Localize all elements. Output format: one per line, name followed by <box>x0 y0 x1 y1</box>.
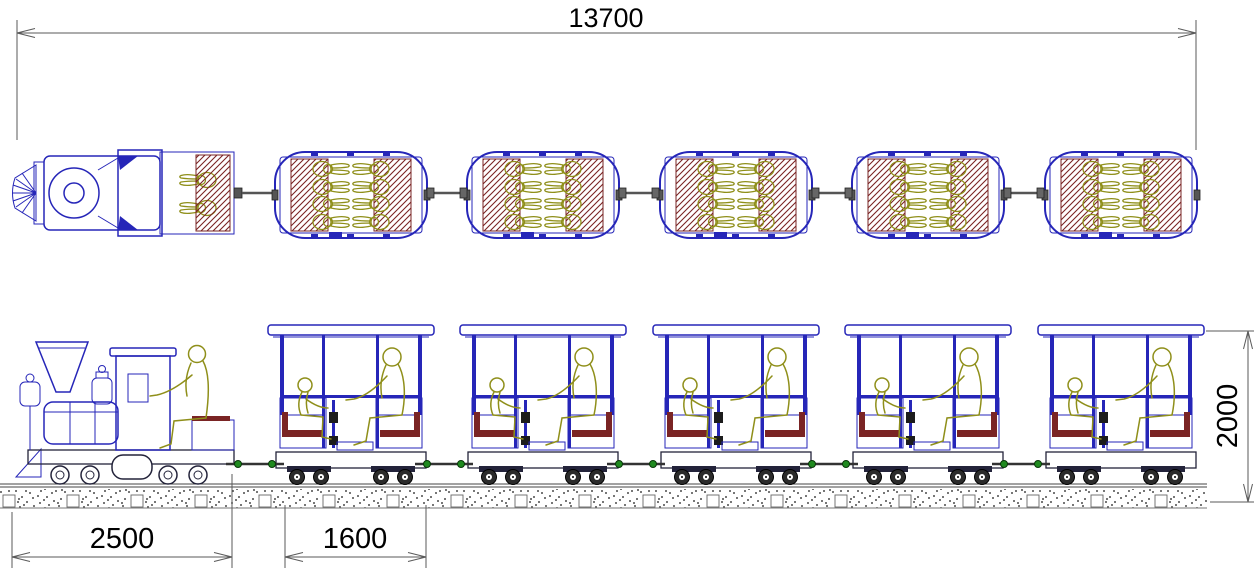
cab-window <box>128 374 148 402</box>
carriage-length-label: 1600 <box>323 523 388 555</box>
total-length-label: 13700 <box>568 3 643 33</box>
carriage-side-4 <box>845 325 1011 485</box>
drawing-canvas: 13700 <box>0 0 1256 587</box>
passenger-pod-plan-5 <box>1042 152 1200 239</box>
fuel-tank <box>112 455 152 479</box>
ballast <box>0 489 1207 508</box>
locomotive-side <box>16 342 234 484</box>
plan-view <box>12 150 1200 239</box>
dimension-carriage-length: 1600 <box>285 505 426 568</box>
plan-coupler-3 <box>812 188 852 198</box>
plan-coupler-4 <box>1004 188 1044 198</box>
track <box>0 484 1207 508</box>
steam-dome <box>92 378 112 404</box>
passenger-pod-plan-1 <box>272 152 430 239</box>
side-coupler-1 <box>415 461 473 468</box>
carriage-side-1 <box>268 325 434 485</box>
dimension-total-length: 13700 <box>17 3 1196 150</box>
dimension-height: 2000 <box>1206 331 1254 502</box>
locomotive-plan <box>12 150 275 236</box>
carriage-side-3 <box>653 325 819 485</box>
plan-coupler-2 <box>619 188 659 198</box>
carriage-side-2 <box>460 325 626 485</box>
passenger-pod-plan-3 <box>657 152 815 239</box>
funnel-smokestack <box>36 342 88 392</box>
dimension-locomotive-length: 2500 <box>12 474 232 568</box>
passenger-pod-plan-4 <box>849 152 1007 239</box>
train-height-label: 2000 <box>1212 384 1244 449</box>
side-coupler-4 <box>992 461 1050 468</box>
cab-roof <box>110 348 176 356</box>
driver-figure-side <box>150 346 208 449</box>
train-technical-drawing: 13700 <box>0 0 1256 587</box>
locomotive-length-label: 2500 <box>90 523 155 555</box>
side-coupler-2 <box>607 461 665 468</box>
side-coupler-3 <box>800 461 858 468</box>
cowcatcher-plan <box>12 173 36 213</box>
side-coupler-0 <box>226 461 284 468</box>
cab <box>116 356 170 450</box>
passenger-pod-plan-2 <box>464 152 622 239</box>
carriage-side-5 <box>1038 325 1204 485</box>
side-view <box>0 325 1207 508</box>
smokestack-plan <box>49 168 99 218</box>
driver-bench-plan <box>196 155 230 231</box>
boiler <box>44 402 118 444</box>
plan-coupler-1 <box>427 188 467 198</box>
